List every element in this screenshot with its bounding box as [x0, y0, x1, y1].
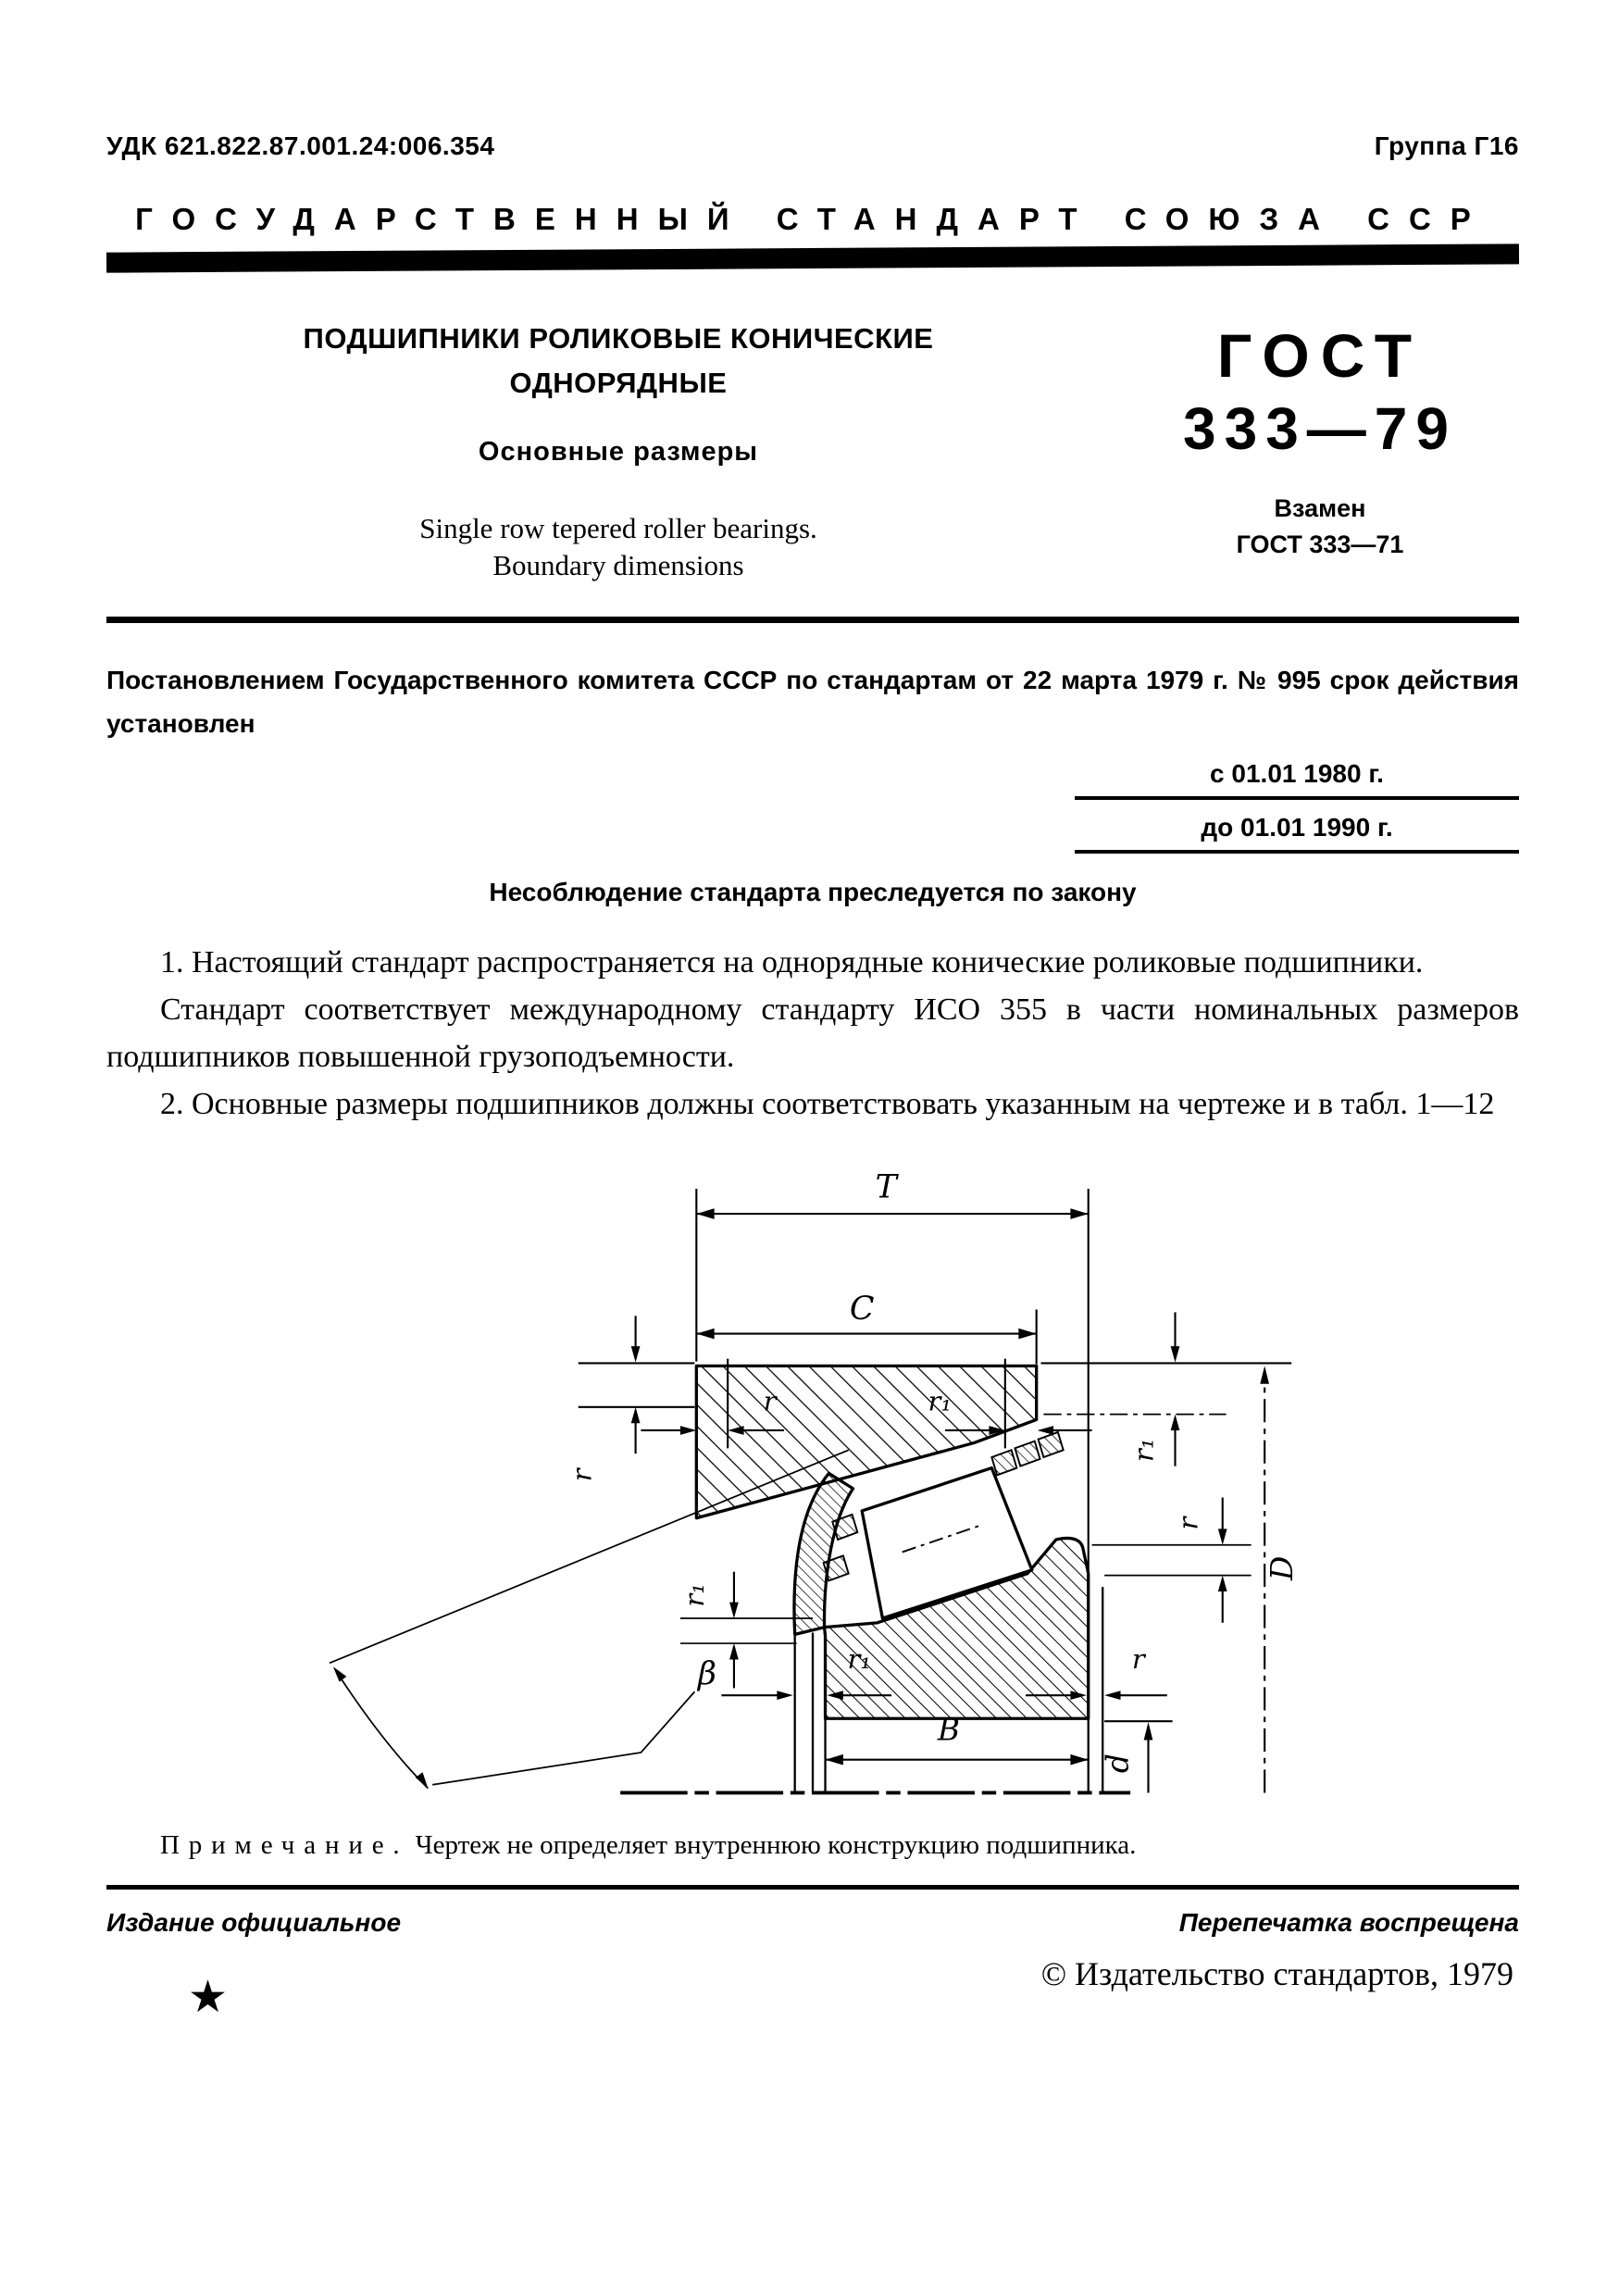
copyright-line: © Издательство стандартов, 1979: [1041, 1954, 1519, 1993]
note-label: Примечание.: [160, 1830, 409, 1860]
dim-label-r1-mid: r₁: [679, 1583, 710, 1606]
valid-to-line: до 01.01 1990 г.: [106, 813, 1519, 854]
reprint-forbidden: Перепечатка воспрещена: [1179, 1908, 1519, 1938]
law-notice: Несоблюдение стандарта преследуется по з…: [106, 878, 1519, 907]
dim-label-T: T: [876, 1169, 900, 1206]
star-icon: ★: [188, 1971, 228, 2023]
edition-official: Издание официальное: [106, 1908, 401, 1938]
dim-C: C: [696, 1291, 1036, 1364]
udk-code: УДК 621.822.87.001.24:006.354: [106, 131, 494, 161]
front-rib-section: [794, 1473, 853, 1634]
title-en-line1: Single row tepered roller bearings.: [143, 510, 1093, 547]
dim-label-r1-right: r₁: [1127, 1438, 1159, 1461]
imprint-row: Издание официальное Перепечатка воспреще…: [106, 1908, 1519, 1938]
note-paragraph: Примечание. Чертеж не определяет внутрен…: [106, 1826, 1519, 1865]
bearing-drawing: T C r: [276, 1135, 1350, 1824]
dim-label-r-mid: r: [1173, 1515, 1204, 1529]
title-english: Single row tepered roller bearings. Boun…: [143, 510, 1093, 585]
gost-number: 333—79: [1121, 394, 1519, 463]
paragraph-2: Стандарт соответствует международному ст…: [106, 986, 1519, 1080]
validity-dates: с 01.01 1980 г. до 01.01 1990 г.: [106, 759, 1519, 854]
dim-beta: β: [330, 1450, 849, 1788]
title-column: ПОДШИПНИКИ РОЛИКОВЫЕ КОНИЧЕСКИЕ ОДНОРЯДН…: [106, 317, 1121, 585]
title-en-line2: Boundary dimensions: [143, 547, 1093, 584]
paragraph-3: 2. Основные размеры подшипников должны с…: [106, 1080, 1519, 1128]
designation-column: ГОСТ 333—79 Взамен ГОСТ 333—71: [1121, 317, 1519, 585]
title-russian: ПОДШИПНИКИ РОЛИКОВЫЕ КОНИЧЕСКИЕ ОДНОРЯДН…: [143, 317, 1093, 406]
dim-label-r-bottom: r: [1132, 1643, 1147, 1675]
paragraph-1: 1. Настоящий стандарт распространяется н…: [106, 939, 1519, 986]
drawing-container: T C r: [106, 1135, 1519, 1824]
document-page: УДК 621.822.87.001.24:006.354 Группа Г16…: [0, 0, 1619, 2296]
valid-to: до 01.01 1990 г.: [1075, 813, 1519, 854]
dim-r-mid-right: r: [1092, 1497, 1252, 1622]
title-ru-line1: ПОДШИПНИКИ РОЛИКОВЫЕ КОНИЧЕСКИЕ: [143, 317, 1093, 361]
separator-rule: [106, 617, 1519, 623]
dim-r-left: r: [566, 1316, 694, 1481]
bottom-row: ★ © Издательство стандартов, 1979: [106, 1940, 1519, 2023]
title-block: ПОДШИПНИКИ РОЛИКОВЫЕ КОНИЧЕСКИЕ ОДНОРЯДН…: [106, 317, 1519, 585]
gost-label: ГОСТ: [1121, 320, 1519, 391]
dim-label-D: D: [1264, 1556, 1300, 1581]
state-standard-header: ГОСУДАРСТВЕННЫЙ СТАНДАРТ СОЮЗА ССР: [106, 202, 1519, 237]
dim-D: D: [1260, 1366, 1300, 1792]
group-code: Группа Г16: [1375, 131, 1519, 161]
decree-paragraph: Постановлением Государственного комитета…: [106, 658, 1519, 746]
dim-label-d: d: [1099, 1753, 1135, 1773]
replaces-number: ГОСТ 333—71: [1121, 530, 1519, 559]
dim-label-beta: β: [696, 1655, 716, 1692]
header-bar: [106, 243, 1519, 272]
udk-row: УДК 621.822.87.001.24:006.354 Группа Г16: [106, 131, 1519, 161]
dim-r1-right: r₁: [1040, 1312, 1291, 1466]
replaces-label: Взамен: [1121, 494, 1519, 523]
footer-rule: [106, 1885, 1519, 1890]
valid-from: с 01.01 1980 г.: [1075, 759, 1519, 800]
dim-label-r-left: r: [566, 1466, 597, 1481]
dim-label-C: C: [850, 1291, 875, 1328]
title-ru-line2: ОДНОРЯДНЫЕ: [143, 361, 1093, 406]
dim-d: d: [1099, 1721, 1172, 1792]
valid-from-line: с 01.01 1980 г.: [106, 759, 1519, 800]
subtitle-russian: Основные размеры: [143, 437, 1093, 468]
body-text: 1. Настоящий стандарт распространяется н…: [106, 939, 1519, 1128]
note-text: Чертеж не определяет внутреннюю конструк…: [416, 1830, 1137, 1860]
